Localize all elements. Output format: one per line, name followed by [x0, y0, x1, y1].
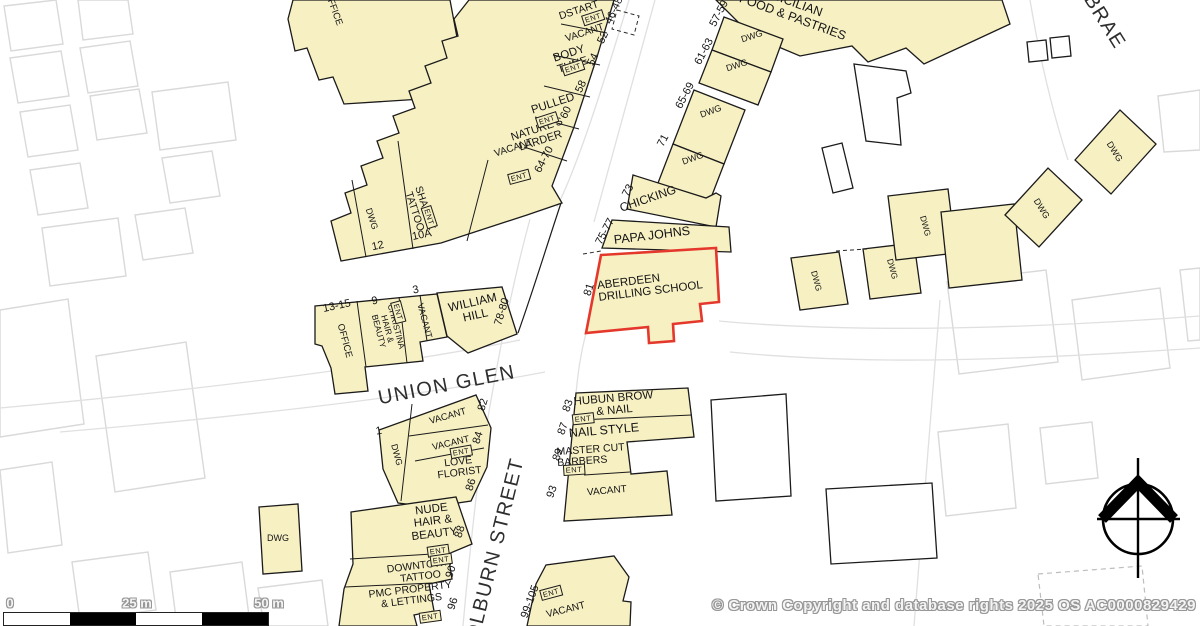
dwelling-label: DWG: [681, 151, 705, 168]
unit-label: VACANT: [493, 138, 534, 161]
unit-label: VACANT: [428, 407, 467, 427]
dwelling-label: DWG: [1031, 197, 1051, 221]
scale-label-mid: 25 m: [122, 596, 152, 611]
dwelling-label: DWG: [1104, 140, 1124, 164]
street-number: 46-48: [604, 0, 627, 26]
dwelling-label: DWG: [267, 534, 289, 544]
label-overlay: UNION GLEN HOLBURN STREET BRAE DSTART VA…: [0, 0, 1200, 626]
street-number: 82: [477, 397, 492, 412]
map-canvas[interactable]: UNION GLEN HOLBURN STREET BRAE DSTART VA…: [0, 0, 1200, 626]
street-number: 13-15: [322, 298, 352, 315]
street-number: 10A: [411, 228, 433, 244]
street-number: 52: [596, 30, 612, 46]
scale-segment: [4, 613, 70, 625]
unit-label: OFFICE: [322, 0, 344, 27]
scale-segment: [136, 613, 202, 625]
dwelling-label: DWG: [699, 104, 723, 121]
street-number: 61-63: [693, 37, 717, 67]
street-number: 58: [574, 79, 590, 95]
dwelling-label: DWG: [725, 58, 749, 74]
scale-label-end: 50 m: [254, 596, 284, 611]
copyright-notice: © Crown Copyright and database rights 20…: [648, 597, 1196, 614]
entrance-marker: ENT: [507, 169, 531, 186]
street-number: 81: [582, 282, 597, 297]
scale-bar: [3, 612, 269, 626]
street-number: 64-70: [533, 145, 557, 175]
unit-label: VACANT: [545, 601, 586, 621]
unit-label: OFFICE: [335, 323, 354, 359]
dwelling-label: DWG: [388, 443, 403, 467]
unit-label: LOVE FLORIST: [436, 454, 483, 482]
street-number: 1: [375, 426, 383, 439]
street-label-union-glen: UNION GLEN: [376, 362, 517, 410]
selected-property-label: ABERDEEN DRILLING SCHOOL: [596, 267, 703, 304]
dwelling-label: DWG: [740, 29, 764, 45]
entrance-marker: ENT: [563, 464, 585, 477]
unit-label: NUDE HAIR & BEAUTY: [408, 501, 458, 544]
street-number: 57-59: [708, 0, 732, 29]
dwelling-label: DWG: [363, 207, 379, 231]
dwelling-label: DWG: [918, 215, 932, 237]
street-number: 3: [412, 285, 420, 298]
street-number: 9: [371, 296, 379, 309]
scale-segment: [202, 613, 268, 625]
scale-segment: [70, 613, 136, 625]
unit-label: PMC PROPERTY & LETTINGS: [368, 580, 454, 613]
street-number: 93: [545, 484, 560, 500]
street-number: 65-69: [674, 81, 698, 111]
dwelling-label: DWG: [885, 258, 899, 280]
street-number: 12: [371, 240, 385, 254]
unit-label: VACANT: [587, 485, 628, 499]
scale-label-zero: 0: [6, 596, 13, 611]
street-label-brae: BRAE: [1079, 0, 1129, 53]
street-number: 86: [465, 477, 480, 492]
street-number: 84: [472, 430, 487, 445]
compass-north-icon: [1088, 450, 1200, 590]
street-number: 96: [447, 596, 462, 611]
entrance-marker: ENT: [572, 412, 595, 426]
street-number: 71: [656, 133, 672, 149]
unit-label: VACANT: [415, 302, 434, 339]
unit-label: PAPA JOHNS: [613, 225, 691, 248]
dwelling-label: DWG: [809, 270, 823, 292]
entrance-marker: ENT: [419, 610, 442, 624]
